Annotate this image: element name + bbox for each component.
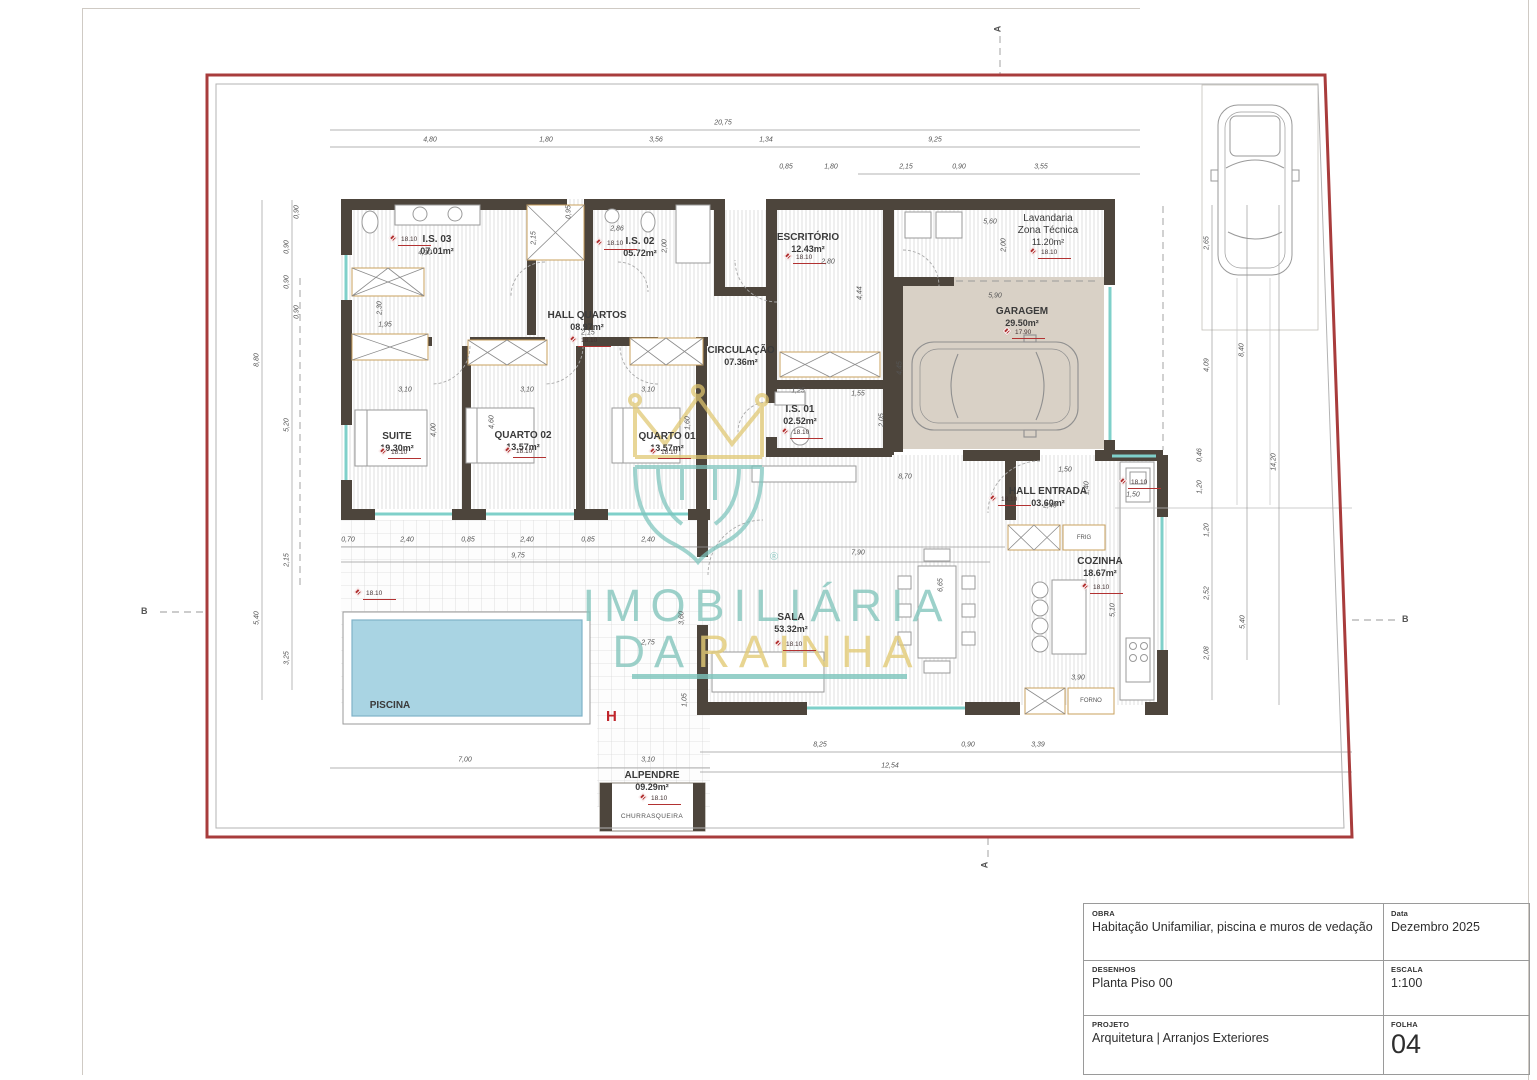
room-label-churrasqueira: CHURRASQUEIRA [621, 813, 683, 821]
dim: 5,10 [1110, 603, 1117, 617]
level-marker: 18.10 [604, 241, 637, 250]
dim: 0,85 [779, 164, 793, 171]
room-label-cozinha: COZINHA18.67m² [1077, 556, 1123, 579]
dim: 2,40 [1043, 503, 1057, 510]
level-marker: 18.10 [783, 642, 816, 651]
section-marker-a-top: A [992, 26, 1002, 33]
dim: 9,25 [928, 137, 942, 144]
dim: 1,40 [1084, 481, 1091, 495]
dim: 2,15 [284, 553, 291, 567]
dim: 1,55 [851, 391, 865, 398]
dim: 8,70 [898, 474, 912, 481]
dim: 4,45 [897, 361, 904, 375]
section-marker-a-bottom: A [979, 862, 989, 869]
drawing-sheet: ® IMOBILIÁRIA DA RAINHA I.S. 0307.01m² I… [0, 0, 1537, 1080]
level-marker: 18.10 [398, 237, 431, 246]
level-marker: 18.10 [1128, 480, 1161, 489]
dim: 5,40 [254, 611, 261, 625]
dim: 2,05 [879, 413, 886, 427]
level-marker-garage: 17.90 [1012, 330, 1045, 339]
sheet-number: 04 [1391, 1029, 1521, 1060]
dim: 1,34 [759, 137, 773, 144]
h-marker: H [606, 708, 617, 725]
dim: 0,46 [1197, 448, 1204, 462]
dim: 2,00 [1001, 238, 1008, 252]
dim: 0,90 [294, 305, 301, 319]
dim: 2,00 [662, 239, 669, 253]
title-block: OBRA Habitação Unifamiliar, piscina e mu… [1083, 903, 1530, 1075]
dim: 3,10 [398, 387, 412, 394]
dim: 1,80 [824, 164, 838, 171]
level-marker: 18.10 [998, 497, 1031, 506]
dim: 3,10 [641, 757, 655, 764]
dim: 4,00 [431, 423, 438, 437]
room-label-sala: SALA53.32m² [774, 612, 808, 635]
room-label-lavandaria: LavandariaZona Técnica 11.20m² [1018, 213, 1078, 248]
room-label-escritorio: ESCRITÓRIO12.43m² [777, 232, 839, 255]
titleblock-escala: ESCALA 1:100 [1383, 960, 1529, 1015]
dim: 1,95 [378, 322, 392, 329]
dim: 7,00 [458, 757, 472, 764]
dim: 8,25 [813, 742, 827, 749]
dim: 0,90 [284, 275, 291, 289]
dim: 0,85 [581, 537, 595, 544]
dim: 3,60 [679, 611, 686, 625]
level-marker: 18.10 [1038, 250, 1071, 259]
level-marker: 18.10 [388, 450, 421, 459]
level-marker: 18.10 [1090, 585, 1123, 594]
titleblock-projeto: PROJETO Arquitetura | Arranjos Exteriore… [1084, 1015, 1383, 1074]
dim: 2,75 [641, 640, 655, 647]
dim: 3,10 [641, 387, 655, 394]
room-label-alpendre: ALPENDRE09.29m² [624, 770, 679, 793]
dim: 2,52 [1204, 586, 1211, 600]
dim: 4,10 [418, 250, 432, 257]
dim: 4,09 [1204, 358, 1211, 372]
dim: 3,55 [1034, 164, 1048, 171]
level-marker: 18.10 [578, 338, 611, 347]
dim: 1,20 [1204, 523, 1211, 537]
dim: 1,05 [682, 693, 689, 707]
dim: 3,90 [1071, 675, 1085, 682]
dim: 2,40 [520, 537, 534, 544]
dim: 1,50 [1126, 492, 1140, 499]
level-marker: 18.10 [363, 591, 396, 600]
dim: 4,60 [489, 415, 496, 429]
room-label-garagem: GARAGEM29.50m² [996, 306, 1048, 329]
dim: 0,70 [341, 537, 355, 544]
dim: 0,90 [952, 164, 966, 171]
dim: 8,80 [254, 353, 261, 367]
dim: 9,75 [511, 553, 525, 560]
dim: 3,25 [284, 651, 291, 665]
dim: 5,20 [284, 418, 291, 432]
dim: 0,90 [961, 742, 975, 749]
dim: 3,39 [1031, 742, 1045, 749]
dim: 2,15 [899, 164, 913, 171]
dim: 5,40 [1240, 615, 1247, 629]
dim: 2,65 [1204, 236, 1211, 250]
dim: 5,90 [988, 293, 1002, 300]
room-label-circulacao: CIRCULAÇÃO07.36m² [707, 345, 774, 368]
level-marker: 18.10 [513, 449, 546, 458]
titleblock-obra: OBRA Habitação Unifamiliar, piscina e mu… [1084, 904, 1383, 960]
dim: 1,25 [791, 388, 805, 395]
titleblock-folha: FOLHA 04 [1383, 1015, 1529, 1074]
dim: 1,60 [685, 416, 692, 430]
dim: 1,20 [1197, 480, 1204, 494]
dim: 0,85 [461, 537, 475, 544]
dim: 2,86 [610, 226, 624, 233]
forno-label: FORNO [1080, 698, 1102, 704]
dim: 14,20 [1271, 453, 1278, 471]
dim: 1,80 [539, 137, 553, 144]
room-label-piscina: PISCINA [370, 700, 411, 712]
dim: 0,95 [566, 205, 573, 219]
section-marker-b-left: B [141, 606, 148, 616]
dim: 20,75 [714, 120, 732, 127]
dim: 0,90 [284, 240, 291, 254]
room-label-is01: I.S. 0102.52m² [783, 404, 817, 427]
dim: 2,08 [1204, 646, 1211, 660]
titleblock-data: Data Dezembro 2025 [1383, 904, 1529, 960]
dim: 12,54 [881, 763, 899, 770]
dim: 2,40 [400, 537, 414, 544]
section-marker-b-right: B [1402, 614, 1409, 624]
dim: 2,30 [377, 301, 384, 315]
dim: 2,40 [641, 537, 655, 544]
dim: 6,65 [938, 578, 945, 592]
dim: 3,10 [520, 387, 534, 394]
level-marker: 18.10 [658, 450, 691, 459]
dim: 8,40 [1239, 343, 1246, 357]
dim: 4,80 [423, 137, 437, 144]
level-marker: 18.10 [648, 796, 681, 805]
dim: 2,80 [821, 259, 835, 266]
outdoor-car [1202, 85, 1318, 505]
dim: 7,90 [851, 550, 865, 557]
dim: 5,60 [983, 219, 997, 226]
dim: 3,56 [649, 137, 663, 144]
level-marker: 18.10 [790, 430, 823, 439]
frig-label: FRIG [1077, 535, 1091, 541]
dim: 4,44 [857, 286, 864, 300]
dim: 2,15 [581, 330, 595, 337]
dim: 0,90 [294, 205, 301, 219]
dim: 1,50 [1058, 467, 1072, 474]
titleblock-desenhos: DESENHOS Planta Piso 00 [1084, 960, 1383, 1015]
dim: 2,15 [531, 231, 538, 245]
